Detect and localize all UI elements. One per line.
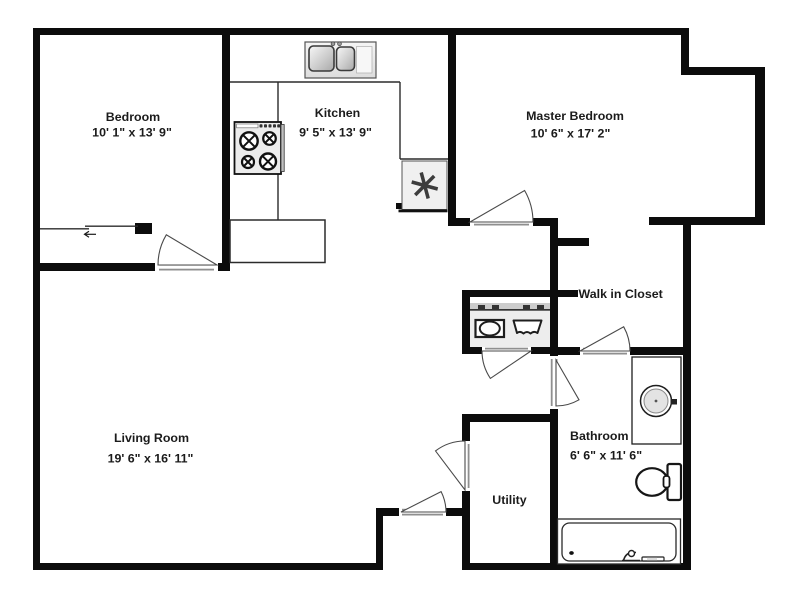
svg-text:19' 6" x 16' 11": 19' 6" x 16' 11" <box>108 452 194 466</box>
svg-text:10' 1" x 13' 9": 10' 1" x 13' 9" <box>92 126 172 140</box>
svg-text:9' 5" x 13' 9": 9' 5" x 13' 9" <box>299 126 372 140</box>
svg-text:Living Room: Living Room <box>114 431 189 445</box>
svg-text:Bathroom: Bathroom <box>570 429 629 443</box>
svg-text:10' 6" x 17' 2": 10' 6" x 17' 2" <box>531 127 611 141</box>
svg-text:Walk in Closet: Walk in Closet <box>579 287 663 301</box>
svg-text:6' 6" x 11' 6": 6' 6" x 11' 6" <box>570 449 642 463</box>
svg-text:Master Bedroom: Master Bedroom <box>526 109 624 123</box>
svg-text:Bedroom: Bedroom <box>106 110 160 124</box>
svg-text:Utility: Utility <box>492 493 527 507</box>
svg-text:Kitchen: Kitchen <box>315 106 360 120</box>
